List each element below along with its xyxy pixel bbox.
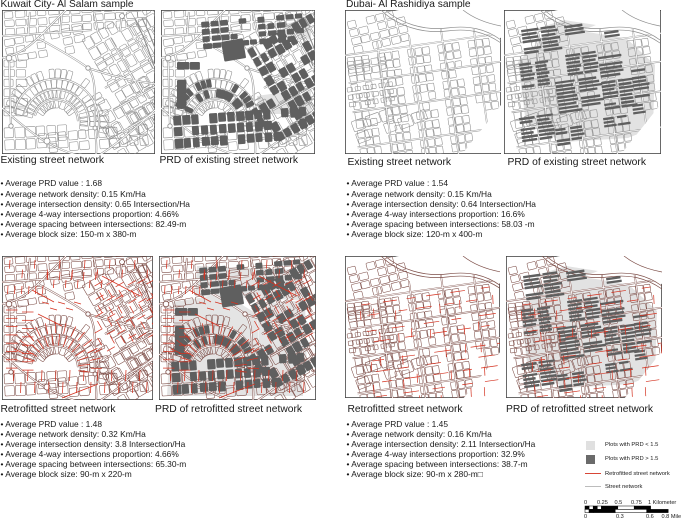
- svg-text:0: 0: [584, 514, 587, 519]
- svg-text:0.3: 0.3: [616, 514, 624, 519]
- svg-text:0.75: 0.75: [631, 500, 642, 506]
- svg-text:0.25: 0.25: [597, 500, 608, 506]
- svg-text:0.6: 0.6: [646, 514, 654, 519]
- svg-text:0: 0: [584, 500, 587, 506]
- svg-text:1 Kilometer: 1 Kilometer: [648, 500, 676, 506]
- svg-text:0.5: 0.5: [615, 500, 623, 506]
- svg-text:0.8 Mile: 0.8 Mile: [662, 514, 682, 519]
